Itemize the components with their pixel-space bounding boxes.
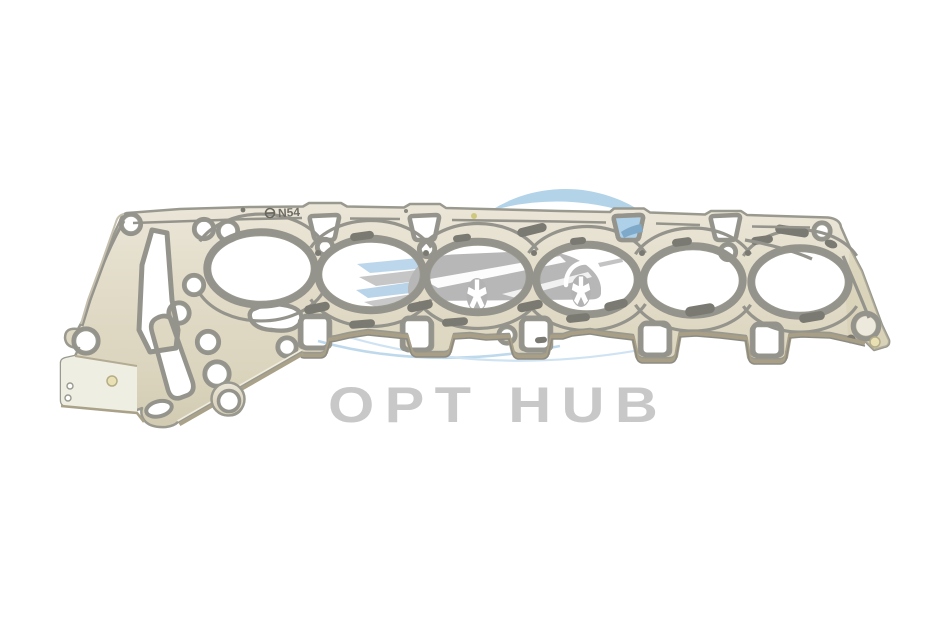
svg-text:OPT HUB: OPT HUB: [328, 377, 668, 433]
svg-text:N54: N54: [278, 205, 301, 220]
